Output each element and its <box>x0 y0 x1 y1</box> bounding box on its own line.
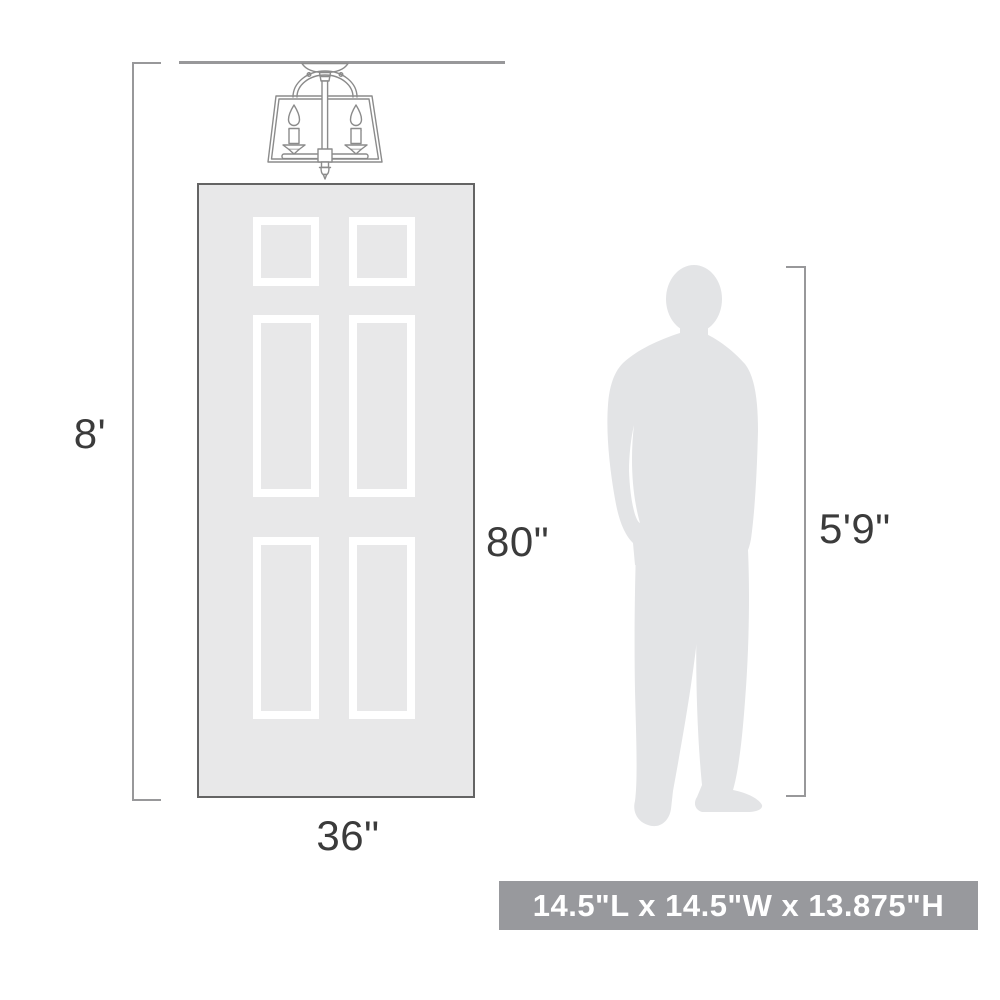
door-height-label: 80" <box>486 521 549 563</box>
man-left-leg <box>634 550 700 826</box>
dimensions-badge-text: 14.5"L x 14.5"W x 13.875"H <box>533 888 945 924</box>
man-right-leg <box>695 550 762 812</box>
ceiling-height-bracket-bottom-tick <box>132 799 161 801</box>
door-panel-middle-right <box>349 315 415 497</box>
door-illustration <box>197 183 475 798</box>
ceiling-height-bracket-line <box>132 62 134 801</box>
door-panel-top-left <box>253 217 319 286</box>
door-panel-middle-left <box>253 315 319 497</box>
door-panel-bottom-right <box>349 537 415 719</box>
ceiling-light-fixture-icon <box>255 55 405 185</box>
man-torso <box>607 329 758 572</box>
fixture-candle-right <box>345 105 367 154</box>
person-height-label: 5'9" <box>819 508 891 550</box>
person-height-bracket-bottom-tick <box>786 795 806 797</box>
door-panel-top-right <box>349 217 415 286</box>
fixture-candle-left <box>283 105 305 154</box>
dimensions-badge: 14.5"L x 14.5"W x 13.875"H <box>499 881 978 930</box>
person-height-bracket-top-tick <box>786 266 806 268</box>
door-panel-bottom-left <box>253 537 319 719</box>
fixture-stem <box>322 81 328 151</box>
door-width-label: 36" <box>303 815 393 857</box>
product-dimensions-diagram: 8' <box>0 0 1000 1000</box>
person-height-bracket-line <box>804 266 806 797</box>
fixture-center-hub <box>318 149 332 162</box>
ceiling-height-bracket-top-tick <box>132 62 161 64</box>
man-silhouette-icon <box>598 263 766 835</box>
fixture-finial <box>320 162 331 179</box>
ceiling-height-label: 8' <box>55 413 125 455</box>
